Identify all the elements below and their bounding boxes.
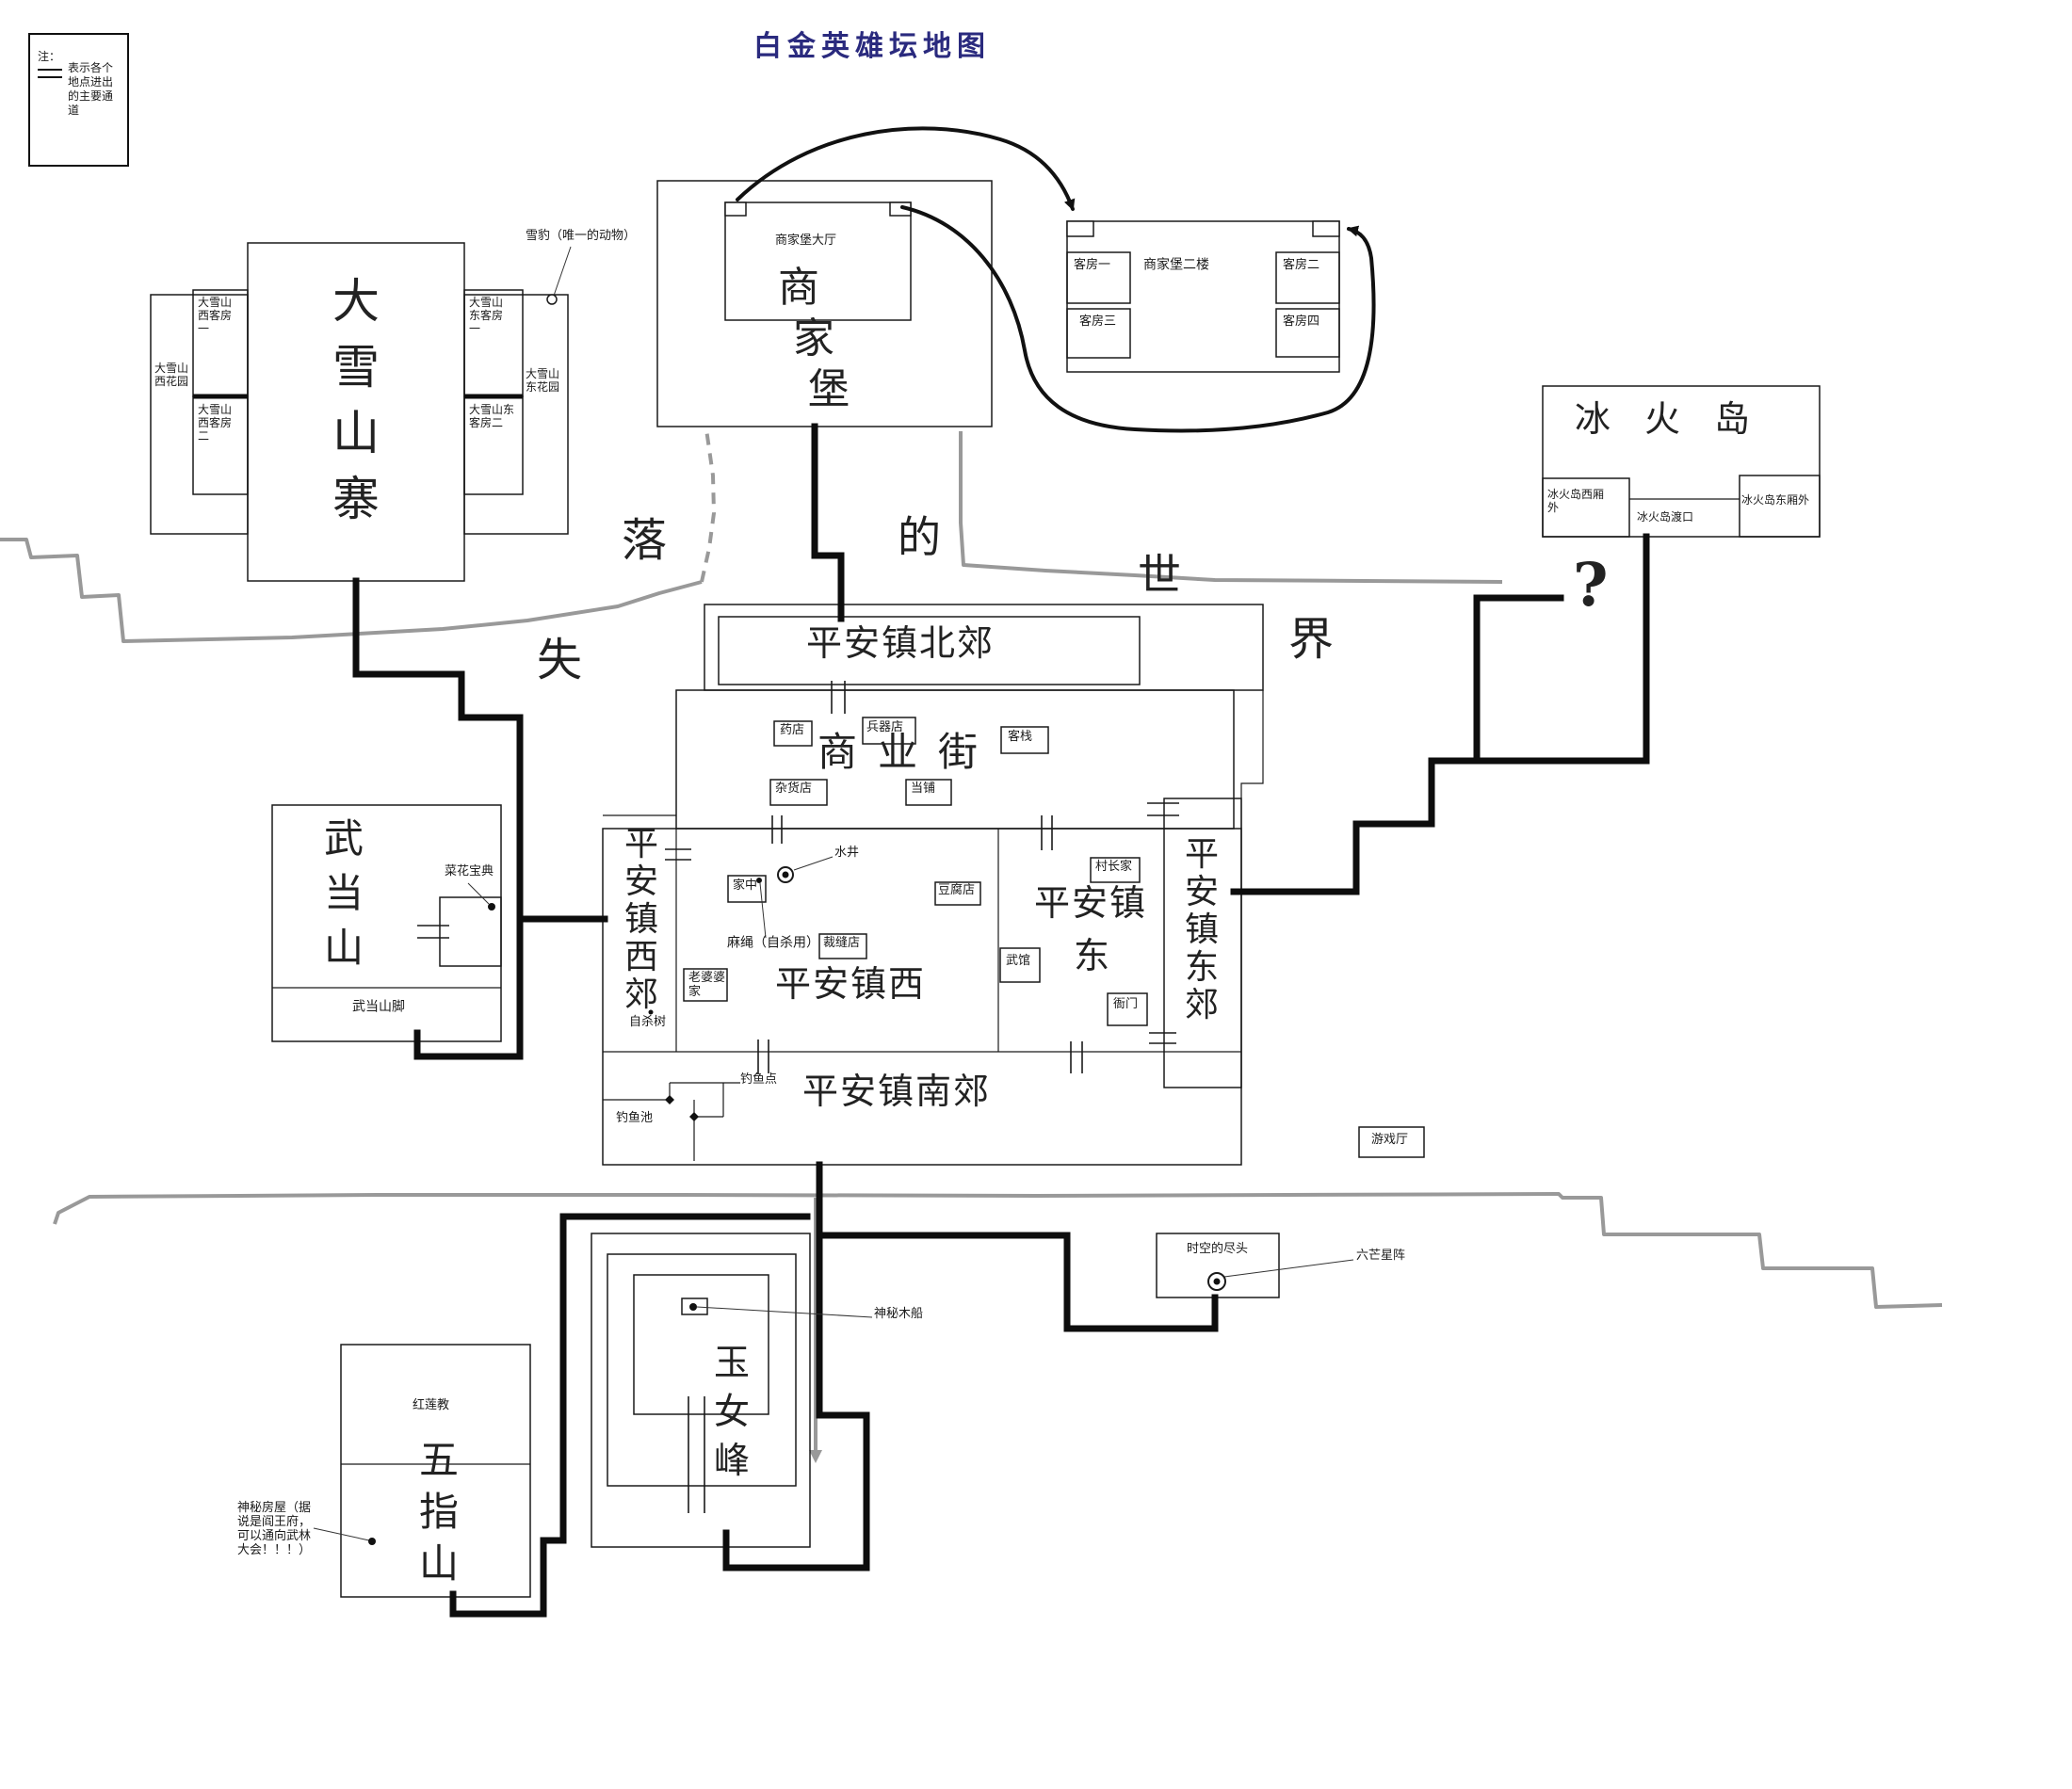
shenmifangwu-note: 神秘房屋（据说是阎王府，可以通向武林大会！！！） — [237, 1500, 311, 1557]
snow-leopard-spot — [547, 295, 557, 304]
2f-door-left — [1067, 221, 1093, 236]
laopopo-label: 老婆婆家 — [688, 971, 725, 999]
wudang-foot-label: 武当山脚 — [352, 1000, 405, 1015]
lost-char-shi: 失 — [537, 634, 582, 686]
leader-masheng — [760, 883, 766, 938]
dsxw-garden-label: 大雪山西花园 — [154, 362, 188, 388]
yunvfeng-outer — [591, 1233, 810, 1547]
beijiao-title: 平安镇北郊 — [806, 622, 995, 664]
nanjiao-title: 平安镇南郊 — [802, 1071, 991, 1112]
dsxe-garden-label: 大雪山东花园 — [526, 367, 559, 394]
leader-liumang — [1224, 1260, 1353, 1277]
sjb-char-jia: 家 — [793, 314, 834, 363]
snow-leopard-note: 雪豹（唯一的动物） — [526, 228, 636, 243]
dangpu-label: 当铺 — [911, 782, 935, 796]
leader-well — [794, 857, 833, 870]
lost-char-luo: 落 — [622, 514, 667, 567]
kefang3-label: 客房三 — [1079, 314, 1116, 329]
shangjiabao-2f — [1067, 221, 1339, 372]
kefang1-label: 客房一 — [1074, 257, 1110, 272]
yunvfeng-title: 玉女峰 — [714, 1342, 750, 1481]
path-daxueshan-to-wudang — [356, 581, 520, 1056]
daxueshan-title: 大雪山寨 — [332, 274, 380, 526]
well-label: 水井 — [834, 846, 859, 860]
xijiao-title: 平安镇西郊 — [624, 825, 658, 1014]
path-yunvfeng-frame-to-wuzhishan — [453, 1217, 807, 1614]
yaodian-label: 药店 — [780, 723, 804, 737]
passage-line-symbol — [38, 69, 62, 84]
dsxw-room2-label: 大雪山西客房二 — [198, 403, 232, 443]
fishing-spot-1 — [665, 1095, 674, 1104]
pingan-dong-title2: 东 — [1074, 935, 1109, 976]
dsxe-room2-label: 大雪山东客房二 — [469, 403, 514, 429]
well-marker-center — [783, 872, 789, 878]
caihua-dot — [488, 903, 495, 911]
beijiao-step-east — [1241, 690, 1263, 829]
sjb-char-bao: 堡 — [808, 365, 850, 413]
shangyejie-title: 商业街 — [817, 729, 998, 775]
lost-char-shi2: 世 — [1138, 549, 1181, 600]
hall-label: 商家堡大厅 — [775, 233, 836, 248]
hexstar-marker-center — [1214, 1279, 1221, 1285]
muchuan-label: 神秘木船 — [874, 1307, 923, 1321]
north-boundary-west — [0, 540, 702, 641]
kefang2-label: 客房二 — [1283, 257, 1319, 272]
wudang-title: 武当山 — [324, 815, 364, 971]
boat-dot — [689, 1303, 697, 1311]
map-canvas: 雪豹（唯一的动物）商家堡大厅商家堡二楼客房一客房三客房二客房四冰火岛西厢外冰火岛… — [0, 0, 2072, 1789]
yunvfeng-mid — [607, 1254, 796, 1486]
leader-caihua — [468, 883, 489, 904]
dsxe-room1-label: 大雪山东客房一 — [469, 296, 503, 335]
hall-door-left — [725, 202, 746, 216]
lost-char-jie: 界 — [1288, 613, 1334, 666]
bhd-east-label: 冰火岛东厢外 — [1741, 492, 1809, 507]
leader-snow-leopard — [554, 247, 571, 296]
bhd-west-label: 冰火岛西厢外 — [1547, 487, 1604, 514]
south-boundary — [55, 1194, 1942, 1307]
bhd-ferry-label: 冰火岛渡口 — [1637, 509, 1693, 524]
doufudian-label: 豆腐店 — [938, 883, 975, 897]
honglianjiao-label: 红莲教 — [413, 1397, 449, 1412]
path-spur-to-question — [1477, 598, 1561, 761]
binghuodao-title: 冰火岛 — [1575, 398, 1784, 440]
wuzhishan-title: 五指山 — [419, 1437, 459, 1587]
yamen-label: 衙门 — [1113, 997, 1138, 1011]
jiazhong-label: 家中 — [733, 878, 757, 893]
map-stage: 雪豹（唯一的动物）商家堡大厅商家堡二楼客房一客房三客房二客房四冰火岛西厢外冰火岛… — [0, 0, 2072, 1789]
kezhan-label: 客栈 — [1008, 729, 1032, 744]
dsxw-room1-label: 大雪山西客房一 — [198, 296, 232, 335]
north-boundary-dashed — [702, 429, 714, 582]
fishing-spot-2 — [689, 1112, 699, 1121]
pingan-xi-title: 平安镇西 — [775, 963, 926, 1005]
diaoyuchi-label: 钓鱼池 — [616, 1110, 653, 1125]
page-title: 白金英雄坛地图 — [753, 23, 991, 64]
fangwu-dot — [368, 1538, 376, 1545]
2f-label: 商家堡二楼 — [1143, 257, 1209, 273]
dongjiao-title: 平安镇东郊 — [1185, 835, 1219, 1024]
kefang4-label: 客房四 — [1283, 314, 1319, 329]
question-mark: ? — [1573, 550, 1609, 621]
shikong-label: 时空的尽头 — [1187, 1241, 1248, 1256]
liumang-label: 六芒星阵 — [1356, 1248, 1405, 1263]
masheng-note: 麻绳（自杀用） — [727, 936, 819, 951]
arrow-hall-to-2f-left — [737, 128, 1073, 209]
wuguan-label: 武馆 — [1006, 954, 1030, 968]
legend-note-label: 注： — [38, 48, 60, 64]
zahuodian-label: 杂货店 — [775, 781, 812, 796]
youxiting-label: 游戏厅 — [1371, 1133, 1408, 1147]
legend-description: 表示各个地点进出的主要通道 — [68, 61, 122, 118]
sjb-char-shang: 商 — [778, 264, 819, 312]
zishashu-label: 自杀树 — [629, 1015, 666, 1029]
caifengdian-label: 裁缝店 — [823, 935, 860, 950]
2f-door-right — [1313, 221, 1339, 236]
caihua-baodian: 菜花宝典 — [445, 863, 494, 878]
leader-muchuan — [697, 1307, 872, 1317]
path-shangjiabao-to-beijiao — [815, 427, 841, 619]
diaoyudian-label: 钓鱼点 — [740, 1072, 777, 1087]
pingan-dong-title1: 平安镇 — [1034, 882, 1147, 924]
lost-char-de: 的 — [898, 511, 941, 562]
legend-box: 注： 表示各个地点进出的主要通道 — [28, 33, 129, 167]
cunzhang-label: 村长家 — [1095, 859, 1132, 874]
north-boundary-east — [961, 431, 1502, 582]
